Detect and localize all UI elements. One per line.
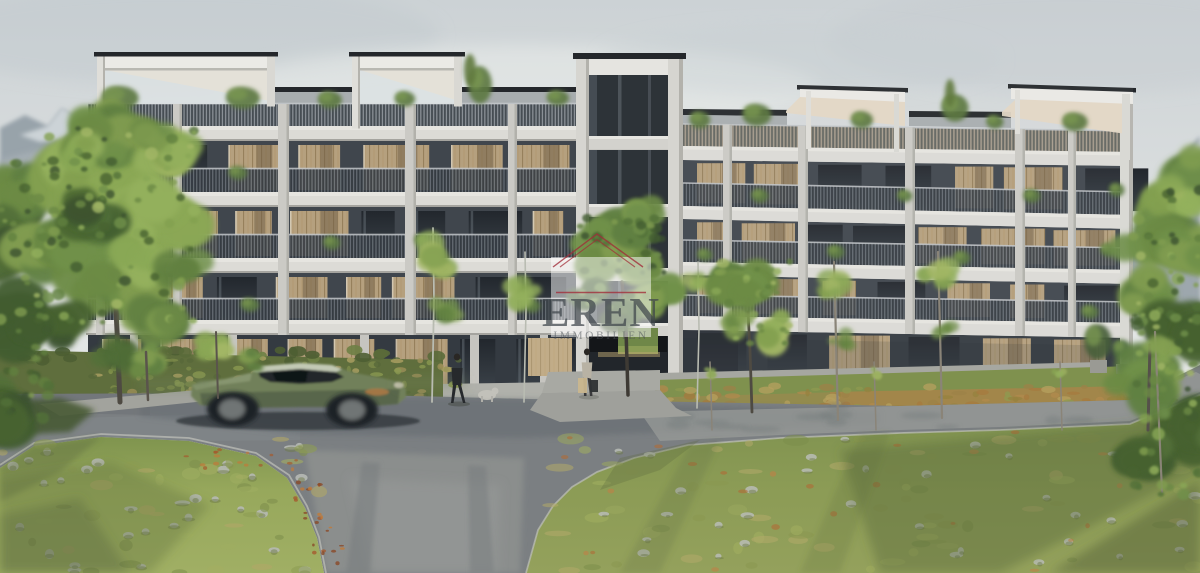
svg-text:IMMOBILIEN: IMMOBILIEN (553, 330, 648, 342)
svg-text:EREN: EREN (542, 289, 660, 335)
